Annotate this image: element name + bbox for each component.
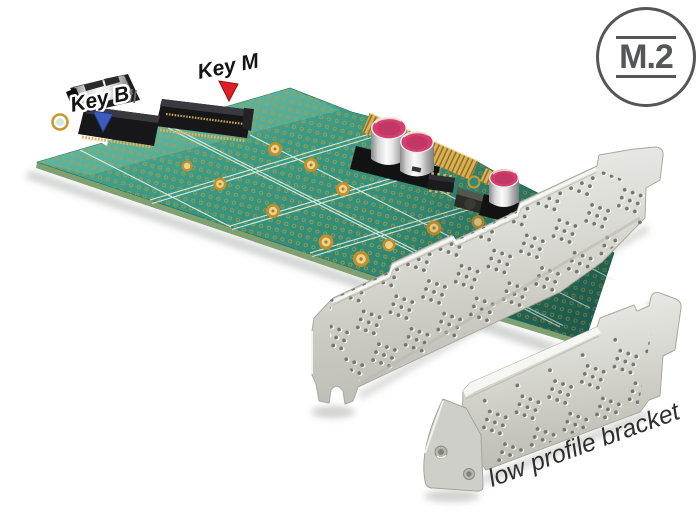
m2-badge: M.2 bbox=[596, 7, 696, 107]
lp-foot-shadow bbox=[424, 490, 480, 502]
callout-key-m: Key M bbox=[196, 49, 262, 101]
product-photo-canvas: Key B Key M low profile bracket M.2 bbox=[0, 0, 700, 530]
bracket-foot-shadow bbox=[311, 406, 355, 418]
m2-badge-text: M.2 bbox=[616, 36, 676, 79]
screw-hole bbox=[464, 469, 475, 480]
screw-hole bbox=[435, 446, 447, 458]
key-m-arrow-icon bbox=[219, 81, 238, 101]
key-m-label: Key M bbox=[196, 49, 262, 83]
capacitor bbox=[489, 169, 519, 208]
card-screw-hole bbox=[469, 177, 480, 188]
product-photo-scene: Key B Key M low profile bracket bbox=[0, 0, 700, 530]
mounting-hole bbox=[53, 115, 68, 130]
